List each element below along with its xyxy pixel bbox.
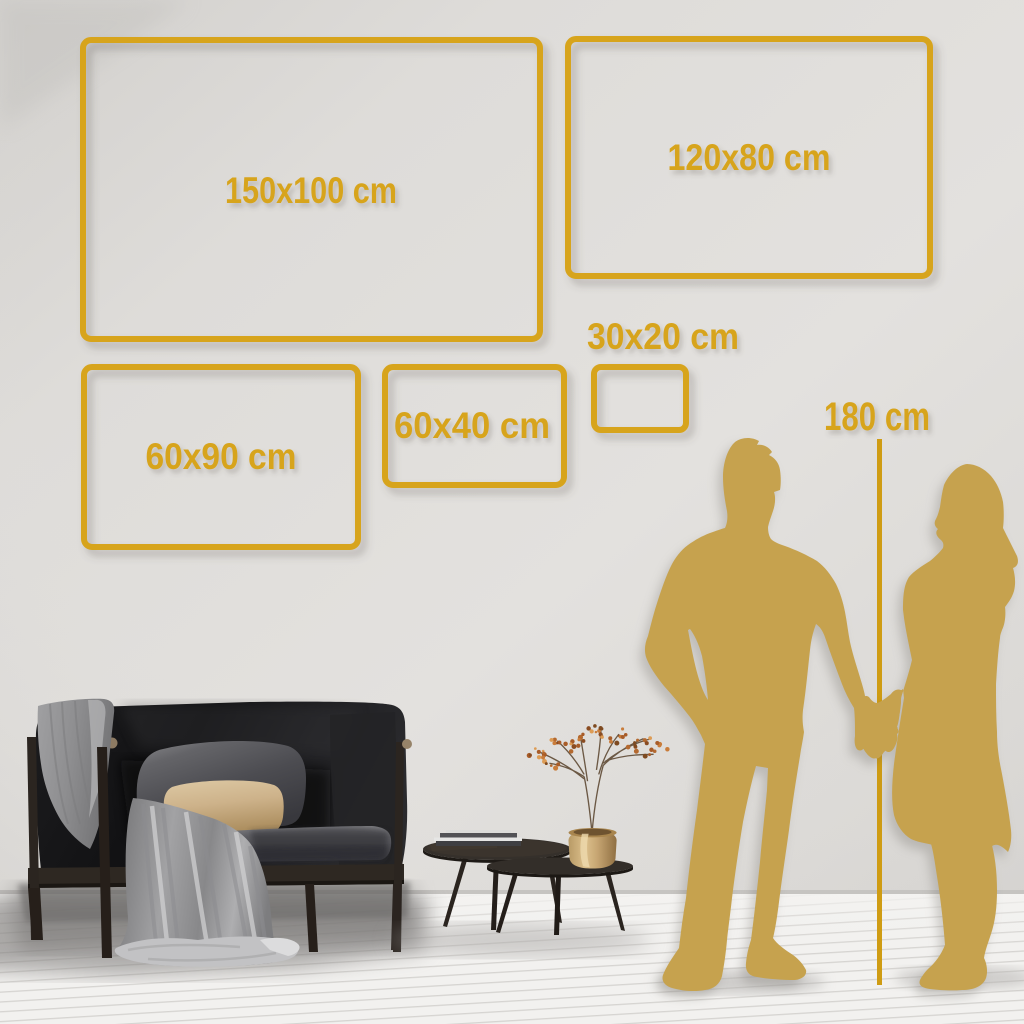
svg-text:180 cm: 180 cm [824, 395, 930, 439]
svg-text:60x40 cm: 60x40 cm [394, 405, 550, 446]
svg-text:150x100 cm: 150x100 cm [225, 170, 397, 211]
svg-text:60x90 cm: 60x90 cm [146, 436, 297, 477]
svg-text:120x80 cm: 120x80 cm [668, 137, 831, 178]
svg-text:30x20 cm: 30x20 cm [587, 316, 739, 357]
